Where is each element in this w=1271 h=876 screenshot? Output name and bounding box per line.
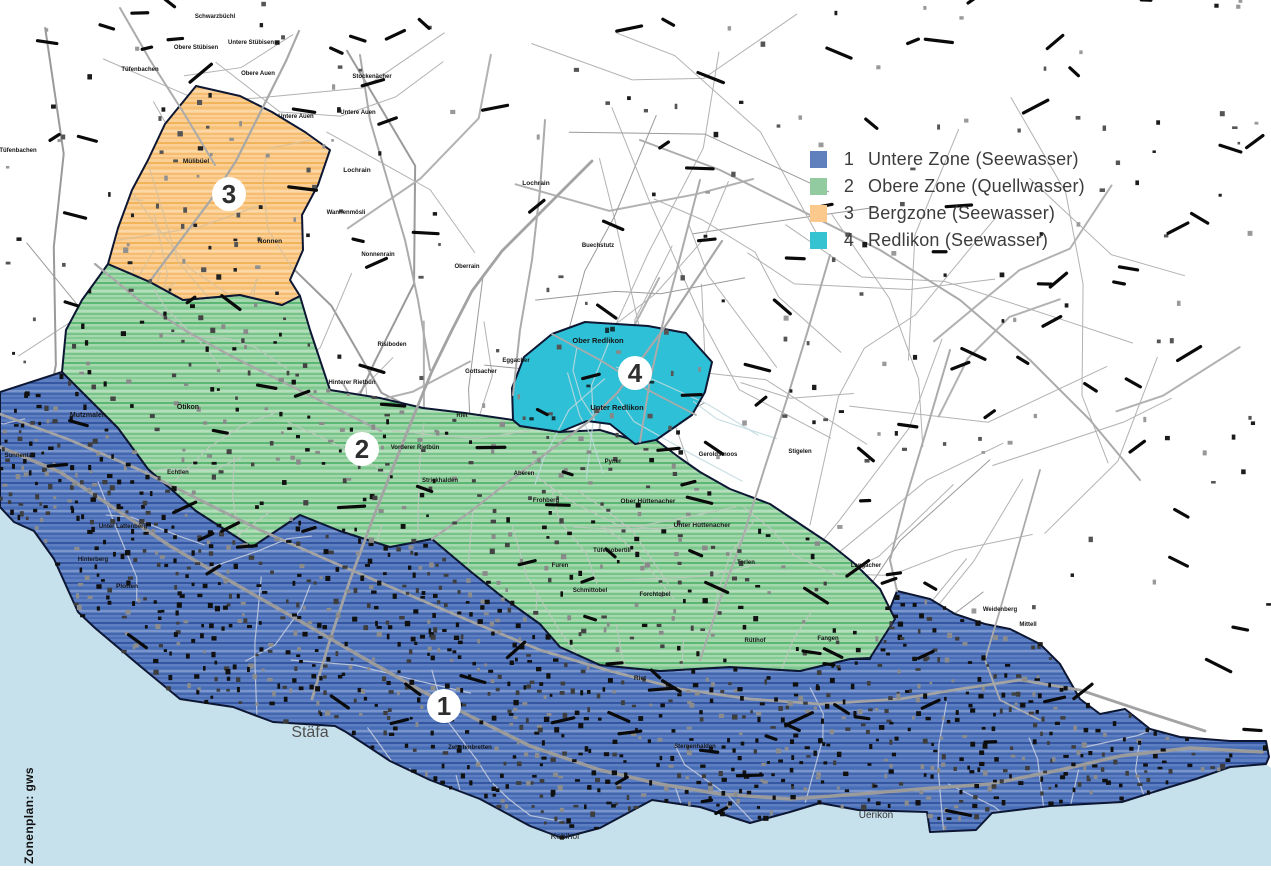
place-label: Ober Redlikon [572, 336, 624, 345]
place-label: Uerikon [859, 810, 893, 821]
place-label: Nonnenrain [361, 252, 395, 258]
zone-number: 1 [437, 691, 451, 721]
legend-swatch-untere-zone [810, 151, 827, 168]
place-label: Hinterer Rietbün [328, 380, 375, 386]
place-label: Stigelen [788, 449, 812, 455]
legend-number: 4 [842, 230, 856, 251]
place-label: Frohberg [533, 498, 560, 504]
place-label: Sternenhalden [674, 744, 716, 750]
place-label: Lochrain [343, 167, 370, 174]
place-label: Plotten [116, 583, 138, 590]
zone-marker-4: 4 [618, 356, 652, 390]
place-label: Vorderer Rietbün [391, 445, 440, 451]
legend-number: 1 [842, 149, 856, 170]
place-label: Rütihof [745, 638, 767, 644]
place-label: Mittell [1019, 622, 1037, 628]
zone-map: SchwarzbüchlObere StübisenUntere Stübise… [0, 0, 1271, 876]
place-label: Kehlhof [551, 831, 580, 841]
legend-label: Redlikon (Seewasser) [868, 230, 1048, 251]
place-label: Forchtobel [640, 592, 671, 598]
place-label: Schmittobel [573, 588, 608, 594]
legend-item-1: 1 Untere Zone (Seewasser) [810, 146, 1085, 173]
place-label: Riet [456, 413, 467, 419]
map-credit: Zonenplan: gws [22, 767, 36, 864]
zone-marker-2: 2 [345, 432, 379, 466]
place-label: Stäfa [291, 724, 328, 741]
place-label: Risiboden [377, 342, 406, 348]
place-label: Oberrain [454, 264, 479, 270]
legend-label: Bergzone (Seewasser) [868, 203, 1055, 224]
place-label: Zehntenbretten [448, 745, 492, 751]
zone-number: 3 [222, 179, 236, 209]
place-label: Mutzmalen [70, 412, 106, 419]
place-label: Sunnental [4, 453, 33, 459]
place-label: Nonnen [258, 238, 282, 245]
place-label: Furen [552, 563, 569, 569]
legend-swatch-bergzone [810, 205, 827, 222]
place-label: Torlen [737, 560, 755, 566]
legend-label: Obere Zone (Quellwasser) [868, 176, 1085, 197]
legend-number: 2 [842, 176, 856, 197]
place-label: Ober Hüttenacher [621, 498, 676, 505]
place-label: Hinterberg [78, 557, 109, 563]
place-label: Aberen [514, 471, 535, 477]
place-label: Obere Auen [241, 71, 275, 77]
place-label: Eggacher [502, 358, 530, 364]
place-label: Geroldsmoos [699, 452, 738, 458]
zone-marker-3: 3 [212, 177, 246, 211]
legend-swatch-obere-zone [810, 178, 827, 195]
zonenplan-page: SchwarzbüchlObere StübisenUntere Stübise… [0, 0, 1271, 876]
place-label: Stockenächer [352, 74, 392, 80]
place-label: Gottsacher [465, 369, 497, 375]
place-label: Fangen [817, 636, 839, 642]
place-label: Schwarzbüchl [195, 14, 236, 20]
place-label: Ötikon [177, 402, 199, 411]
place-label: Obere Stübisen [174, 45, 219, 51]
place-label: Buechstutz [582, 243, 614, 249]
zone-marker-1: 1 [427, 689, 461, 723]
place-label: Unter Hüttenacher [674, 522, 731, 529]
legend-item-2: 2 Obere Zone (Quellwasser) [810, 173, 1085, 200]
place-label: Untere Stübisen [228, 40, 274, 46]
place-label: Unter Lattenberg [99, 524, 148, 530]
zone-number: 4 [628, 358, 643, 388]
place-label: Untere Auen [278, 114, 314, 120]
place-label: Tüfenbachen [121, 67, 159, 73]
place-label: Weidenberg [983, 607, 1018, 613]
legend: 1 Untere Zone (Seewasser) 2 Obere Zone (… [810, 146, 1085, 254]
zone-number: 2 [355, 434, 369, 464]
place-label: Strickhalden [422, 478, 458, 484]
place-label: Langacher [851, 563, 882, 569]
place-label: Lochrain [522, 180, 549, 187]
place-label: Pyner [605, 459, 622, 465]
legend-swatch-redlikon [810, 232, 827, 249]
place-label: Riet [634, 675, 647, 682]
place-label: Wannenmösli [327, 210, 366, 216]
place-label: Tüfenbachen [0, 148, 37, 154]
legend-item-4: 4 Redlikon (Seewasser) [810, 227, 1085, 254]
place-label: Echtlen [167, 470, 189, 476]
legend-number: 3 [842, 203, 856, 224]
legend-label: Untere Zone (Seewasser) [868, 149, 1079, 170]
legend-item-3: 3 Bergzone (Seewasser) [810, 200, 1085, 227]
place-label: Unter Redlikon [590, 403, 644, 412]
place-label: Mülibüel [183, 158, 210, 165]
place-label: Tüfelsobertili [593, 548, 631, 554]
place-label: Untere Auen [340, 110, 376, 116]
